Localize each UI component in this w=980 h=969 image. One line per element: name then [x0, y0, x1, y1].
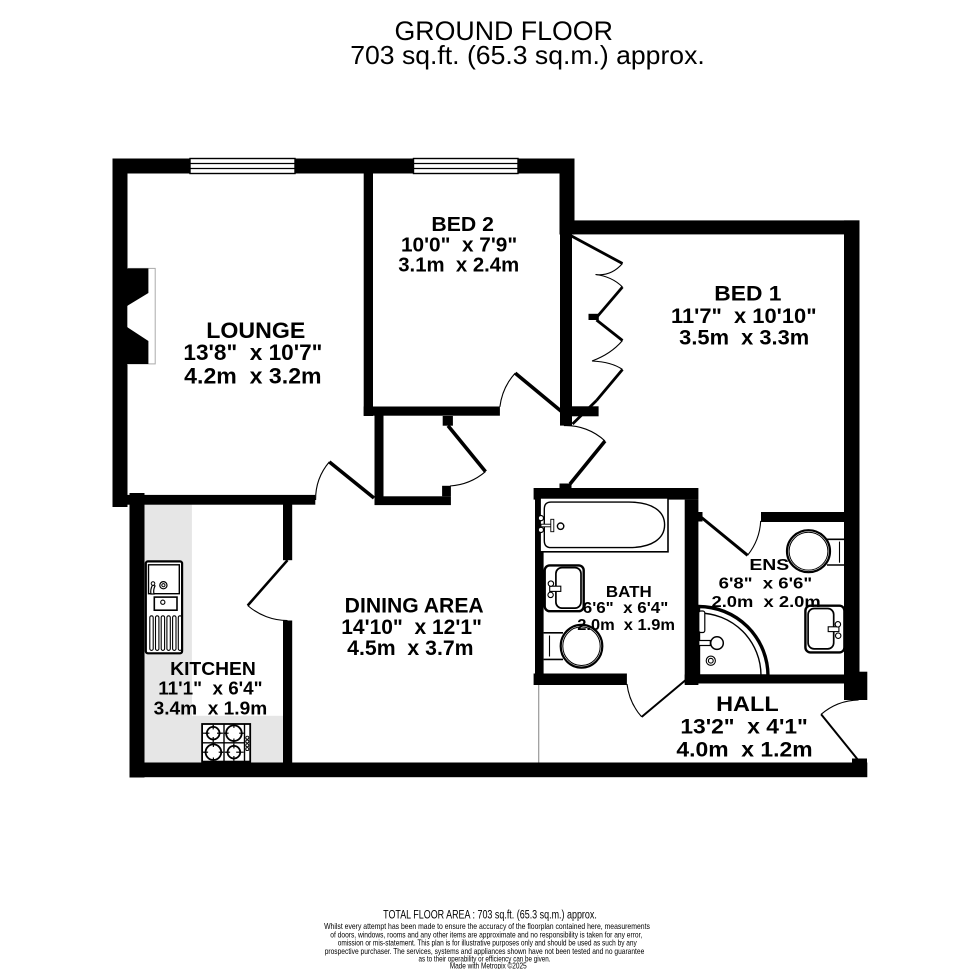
svg-text:6'6" x 6'4": 6'6" x 6'4" — [583, 600, 669, 617]
svg-text:703 sq.ft. (65.3 sq.m.) approx: 703 sq.ft. (65.3 sq.m.) approx. — [350, 40, 705, 70]
svg-text:BED 1: BED 1 — [714, 281, 781, 305]
svg-text:3.4m x 1.9m: 3.4m x 1.9m — [154, 698, 268, 719]
svg-text:11'7" x 10'10": 11'7" x 10'10" — [671, 304, 817, 328]
svg-text:3.5m x 3.3m: 3.5m x 3.3m — [679, 326, 809, 350]
svg-text:13'2" x 4'1": 13'2" x 4'1" — [680, 715, 808, 738]
svg-text:Made with Metropix ©2025: Made with Metropix ©2025 — [450, 961, 527, 969]
svg-text:BED 2: BED 2 — [431, 214, 494, 236]
svg-text:4.0m x 1.2m: 4.0m x 1.2m — [676, 739, 812, 762]
svg-text:3.1m x 2.4m: 3.1m x 2.4m — [398, 255, 519, 277]
svg-text:4.2m x 3.2m: 4.2m x 3.2m — [184, 364, 321, 389]
svg-text:DINING AREA: DINING AREA — [345, 595, 484, 618]
svg-text:6'8" x 6'6": 6'8" x 6'6" — [719, 576, 813, 593]
svg-text:ENS: ENS — [749, 557, 789, 574]
svg-text:2.0m x 2.0m: 2.0m x 2.0m — [712, 594, 821, 611]
svg-text:11'1" x 6'4": 11'1" x 6'4" — [158, 678, 262, 699]
svg-text:13'8" x 10'7": 13'8" x 10'7" — [183, 340, 322, 365]
svg-text:TOTAL FLOOR AREA : 703 sq.ft.: TOTAL FLOOR AREA : 703 sq.ft. (65.3 sq.m… — [383, 908, 597, 922]
svg-text:KITCHEN: KITCHEN — [170, 658, 256, 679]
svg-text:2.0m x 1.9m: 2.0m x 1.9m — [577, 617, 675, 634]
svg-text:4.5m x 3.7m: 4.5m x 3.7m — [347, 637, 473, 660]
svg-text:HALL: HALL — [716, 693, 779, 716]
svg-text:10'0" x 7'9": 10'0" x 7'9" — [401, 234, 517, 256]
svg-text:BATH: BATH — [606, 584, 652, 601]
svg-text:14'10" x 12'1": 14'10" x 12'1" — [341, 616, 482, 639]
